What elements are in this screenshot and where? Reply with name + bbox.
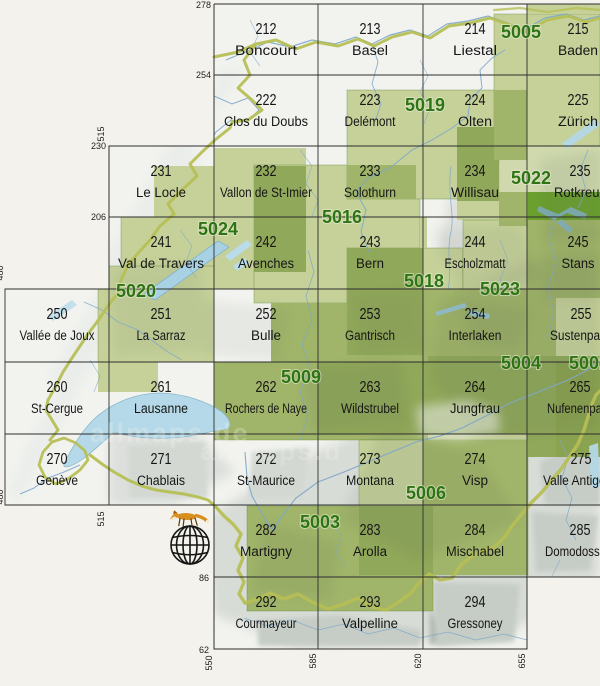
- svg-text:5019: 5019: [405, 94, 445, 115]
- svg-text:Escholzmatt: Escholzmatt: [445, 256, 506, 271]
- svg-text:Basel: Basel: [352, 43, 388, 58]
- svg-text:5006: 5006: [406, 482, 446, 503]
- svg-text:253: 253: [360, 306, 381, 323]
- svg-text:5022: 5022: [511, 167, 551, 188]
- svg-text:Courmayeur: Courmayeur: [236, 616, 297, 631]
- svg-text:620: 620: [413, 653, 423, 668]
- svg-text:Bern: Bern: [356, 256, 384, 271]
- svg-text:5005: 5005: [501, 21, 541, 42]
- svg-text:294: 294: [465, 594, 486, 611]
- svg-text:222: 222: [256, 92, 277, 109]
- svg-text:5024: 5024: [198, 218, 239, 239]
- svg-text:480: 480: [0, 489, 5, 504]
- svg-text:Avenches: Avenches: [238, 256, 294, 271]
- svg-text:215: 215: [568, 21, 589, 38]
- svg-text:Chablais: Chablais: [137, 473, 185, 488]
- svg-text:223: 223: [360, 92, 381, 109]
- svg-text:5023: 5023: [480, 278, 520, 299]
- svg-text:255: 255: [571, 306, 592, 323]
- svg-text:212: 212: [256, 21, 277, 38]
- svg-text:213: 213: [360, 21, 381, 38]
- svg-text:Wildstrubel: Wildstrubel: [341, 401, 399, 416]
- svg-text:224: 224: [465, 92, 486, 109]
- svg-text:Stans: Stans: [562, 256, 595, 271]
- svg-text:214: 214: [465, 21, 486, 38]
- svg-text:271: 271: [151, 451, 172, 468]
- svg-text:Valpelline: Valpelline: [342, 616, 398, 631]
- svg-text:245: 245: [568, 234, 589, 251]
- svg-text:285: 285: [570, 522, 591, 539]
- svg-text:Mischabel: Mischabel: [446, 544, 504, 559]
- svg-text:Boncourt: Boncourt: [235, 43, 297, 58]
- svg-text:254: 254: [465, 306, 486, 323]
- svg-text:5009: 5009: [281, 366, 321, 387]
- svg-text:275: 275: [571, 451, 592, 468]
- svg-text:Baden: Baden: [558, 43, 598, 58]
- svg-text:262: 262: [256, 379, 277, 396]
- svg-text:Martigny: Martigny: [240, 544, 292, 559]
- svg-text:Jungfrau: Jungfrau: [450, 401, 500, 416]
- svg-text:250: 250: [47, 306, 68, 323]
- svg-text:252: 252: [256, 306, 277, 323]
- svg-text:62: 62: [199, 645, 209, 655]
- svg-text:265: 265: [570, 379, 591, 396]
- svg-text:Willisau: Willisau: [451, 185, 499, 200]
- svg-text:264: 264: [465, 379, 486, 396]
- svg-text:Rochers de Naye: Rochers de Naye: [225, 401, 307, 416]
- svg-text:282: 282: [256, 522, 277, 539]
- svg-text:284: 284: [465, 522, 486, 539]
- svg-text:Genève: Genève: [36, 473, 78, 488]
- svg-text:5016: 5016: [322, 206, 362, 227]
- svg-text:St-Maurice: St-Maurice: [237, 473, 295, 488]
- svg-text:Visp: Visp: [462, 473, 488, 488]
- svg-text:86: 86: [199, 573, 209, 583]
- svg-text:234: 234: [465, 163, 486, 180]
- svg-text:242: 242: [256, 234, 277, 251]
- svg-text:Le Locle: Le Locle: [136, 185, 186, 200]
- svg-text:Solothurn: Solothurn: [344, 185, 396, 200]
- svg-text:Domodossola: Domodossola: [545, 544, 600, 559]
- svg-text:270: 270: [47, 451, 68, 468]
- svg-text:Sustenpass: Sustenpass: [550, 328, 600, 343]
- svg-text:5001: 5001: [569, 352, 600, 373]
- svg-text:Nufenenpass: Nufenenpass: [547, 401, 600, 416]
- svg-text:Montana: Montana: [346, 473, 394, 488]
- svg-text:585: 585: [308, 653, 318, 668]
- svg-text:Vallée de Joux: Vallée de Joux: [20, 328, 95, 343]
- svg-text:251: 251: [151, 306, 172, 323]
- svg-text:225: 225: [568, 92, 589, 109]
- svg-text:Lausanne: Lausanne: [134, 401, 188, 416]
- svg-text:Vallon de St-Imier: Vallon de St-Imier: [220, 185, 312, 200]
- svg-text:480: 480: [0, 265, 5, 280]
- svg-text:232: 232: [256, 163, 277, 180]
- svg-text:278: 278: [196, 0, 211, 10]
- svg-text:283: 283: [360, 522, 381, 539]
- svg-text:263: 263: [360, 379, 381, 396]
- svg-text:5018: 5018: [404, 270, 444, 291]
- svg-text:292: 292: [256, 594, 277, 611]
- svg-text:Gressoney: Gressoney: [448, 616, 503, 631]
- svg-text:allmaps.d: allmaps.d: [200, 436, 343, 466]
- svg-text:274: 274: [465, 451, 486, 468]
- svg-text:Valle Antigorio: Valle Antigorio: [543, 473, 600, 488]
- svg-text:Zürich: Zürich: [558, 114, 598, 129]
- svg-text:231: 231: [151, 163, 172, 180]
- svg-text:241: 241: [151, 234, 172, 251]
- svg-text:Arolla: Arolla: [353, 544, 387, 559]
- svg-text:St-Cergue: St-Cergue: [31, 401, 83, 416]
- svg-text:233: 233: [360, 163, 381, 180]
- svg-text:293: 293: [360, 594, 381, 611]
- svg-text:550: 550: [204, 655, 214, 670]
- svg-text:243: 243: [360, 234, 381, 251]
- svg-text:5004: 5004: [501, 352, 542, 373]
- svg-text:515: 515: [96, 126, 106, 141]
- svg-text:515: 515: [96, 511, 106, 526]
- svg-text:Bulle: Bulle: [251, 328, 281, 343]
- svg-text:Gantrisch: Gantrisch: [345, 328, 395, 343]
- svg-text:5003: 5003: [300, 511, 340, 532]
- svg-text:Delémont: Delémont: [345, 114, 396, 129]
- svg-text:206: 206: [91, 212, 106, 222]
- svg-text:261: 261: [151, 379, 172, 396]
- svg-text:Val de Travers: Val de Travers: [118, 256, 204, 271]
- svg-text:244: 244: [465, 234, 486, 251]
- svg-text:Olten: Olten: [458, 114, 492, 129]
- svg-text:273: 273: [360, 451, 381, 468]
- svg-text:Interlaken: Interlaken: [449, 328, 502, 343]
- svg-text:Rotkreuz: Rotkreuz: [554, 185, 600, 200]
- svg-text:655: 655: [517, 653, 527, 668]
- svg-text:5020: 5020: [116, 280, 156, 301]
- svg-text:Liestal: Liestal: [453, 43, 497, 58]
- svg-text:235: 235: [570, 163, 591, 180]
- svg-text:260: 260: [47, 379, 68, 396]
- svg-text:Clos du Doubs: Clos du Doubs: [224, 114, 308, 129]
- svg-text:La Sarraz: La Sarraz: [137, 328, 186, 343]
- svg-text:254: 254: [196, 70, 211, 80]
